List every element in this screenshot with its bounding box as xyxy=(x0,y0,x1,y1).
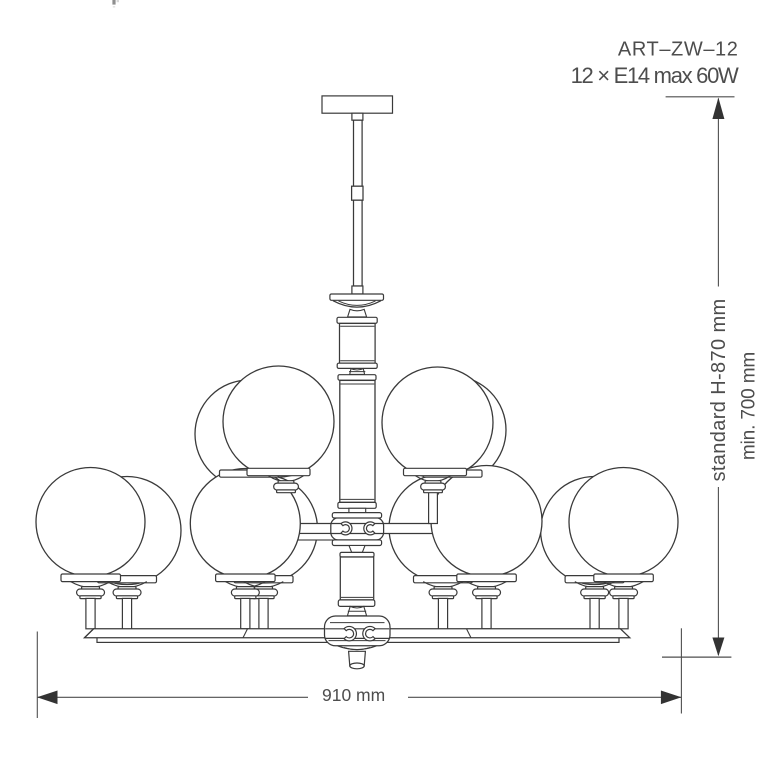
svg-text:min. 700 mm: min. 700 mm xyxy=(739,352,760,460)
svg-text:910 mm: 910 mm xyxy=(322,685,385,705)
svg-text:ART–ZW–12: ART–ZW–12 xyxy=(618,39,739,61)
svg-text:standard H-870 mm: standard H-870 mm xyxy=(708,298,730,481)
svg-text:12 × E14 max 60W: 12 × E14 max 60W xyxy=(571,63,739,88)
